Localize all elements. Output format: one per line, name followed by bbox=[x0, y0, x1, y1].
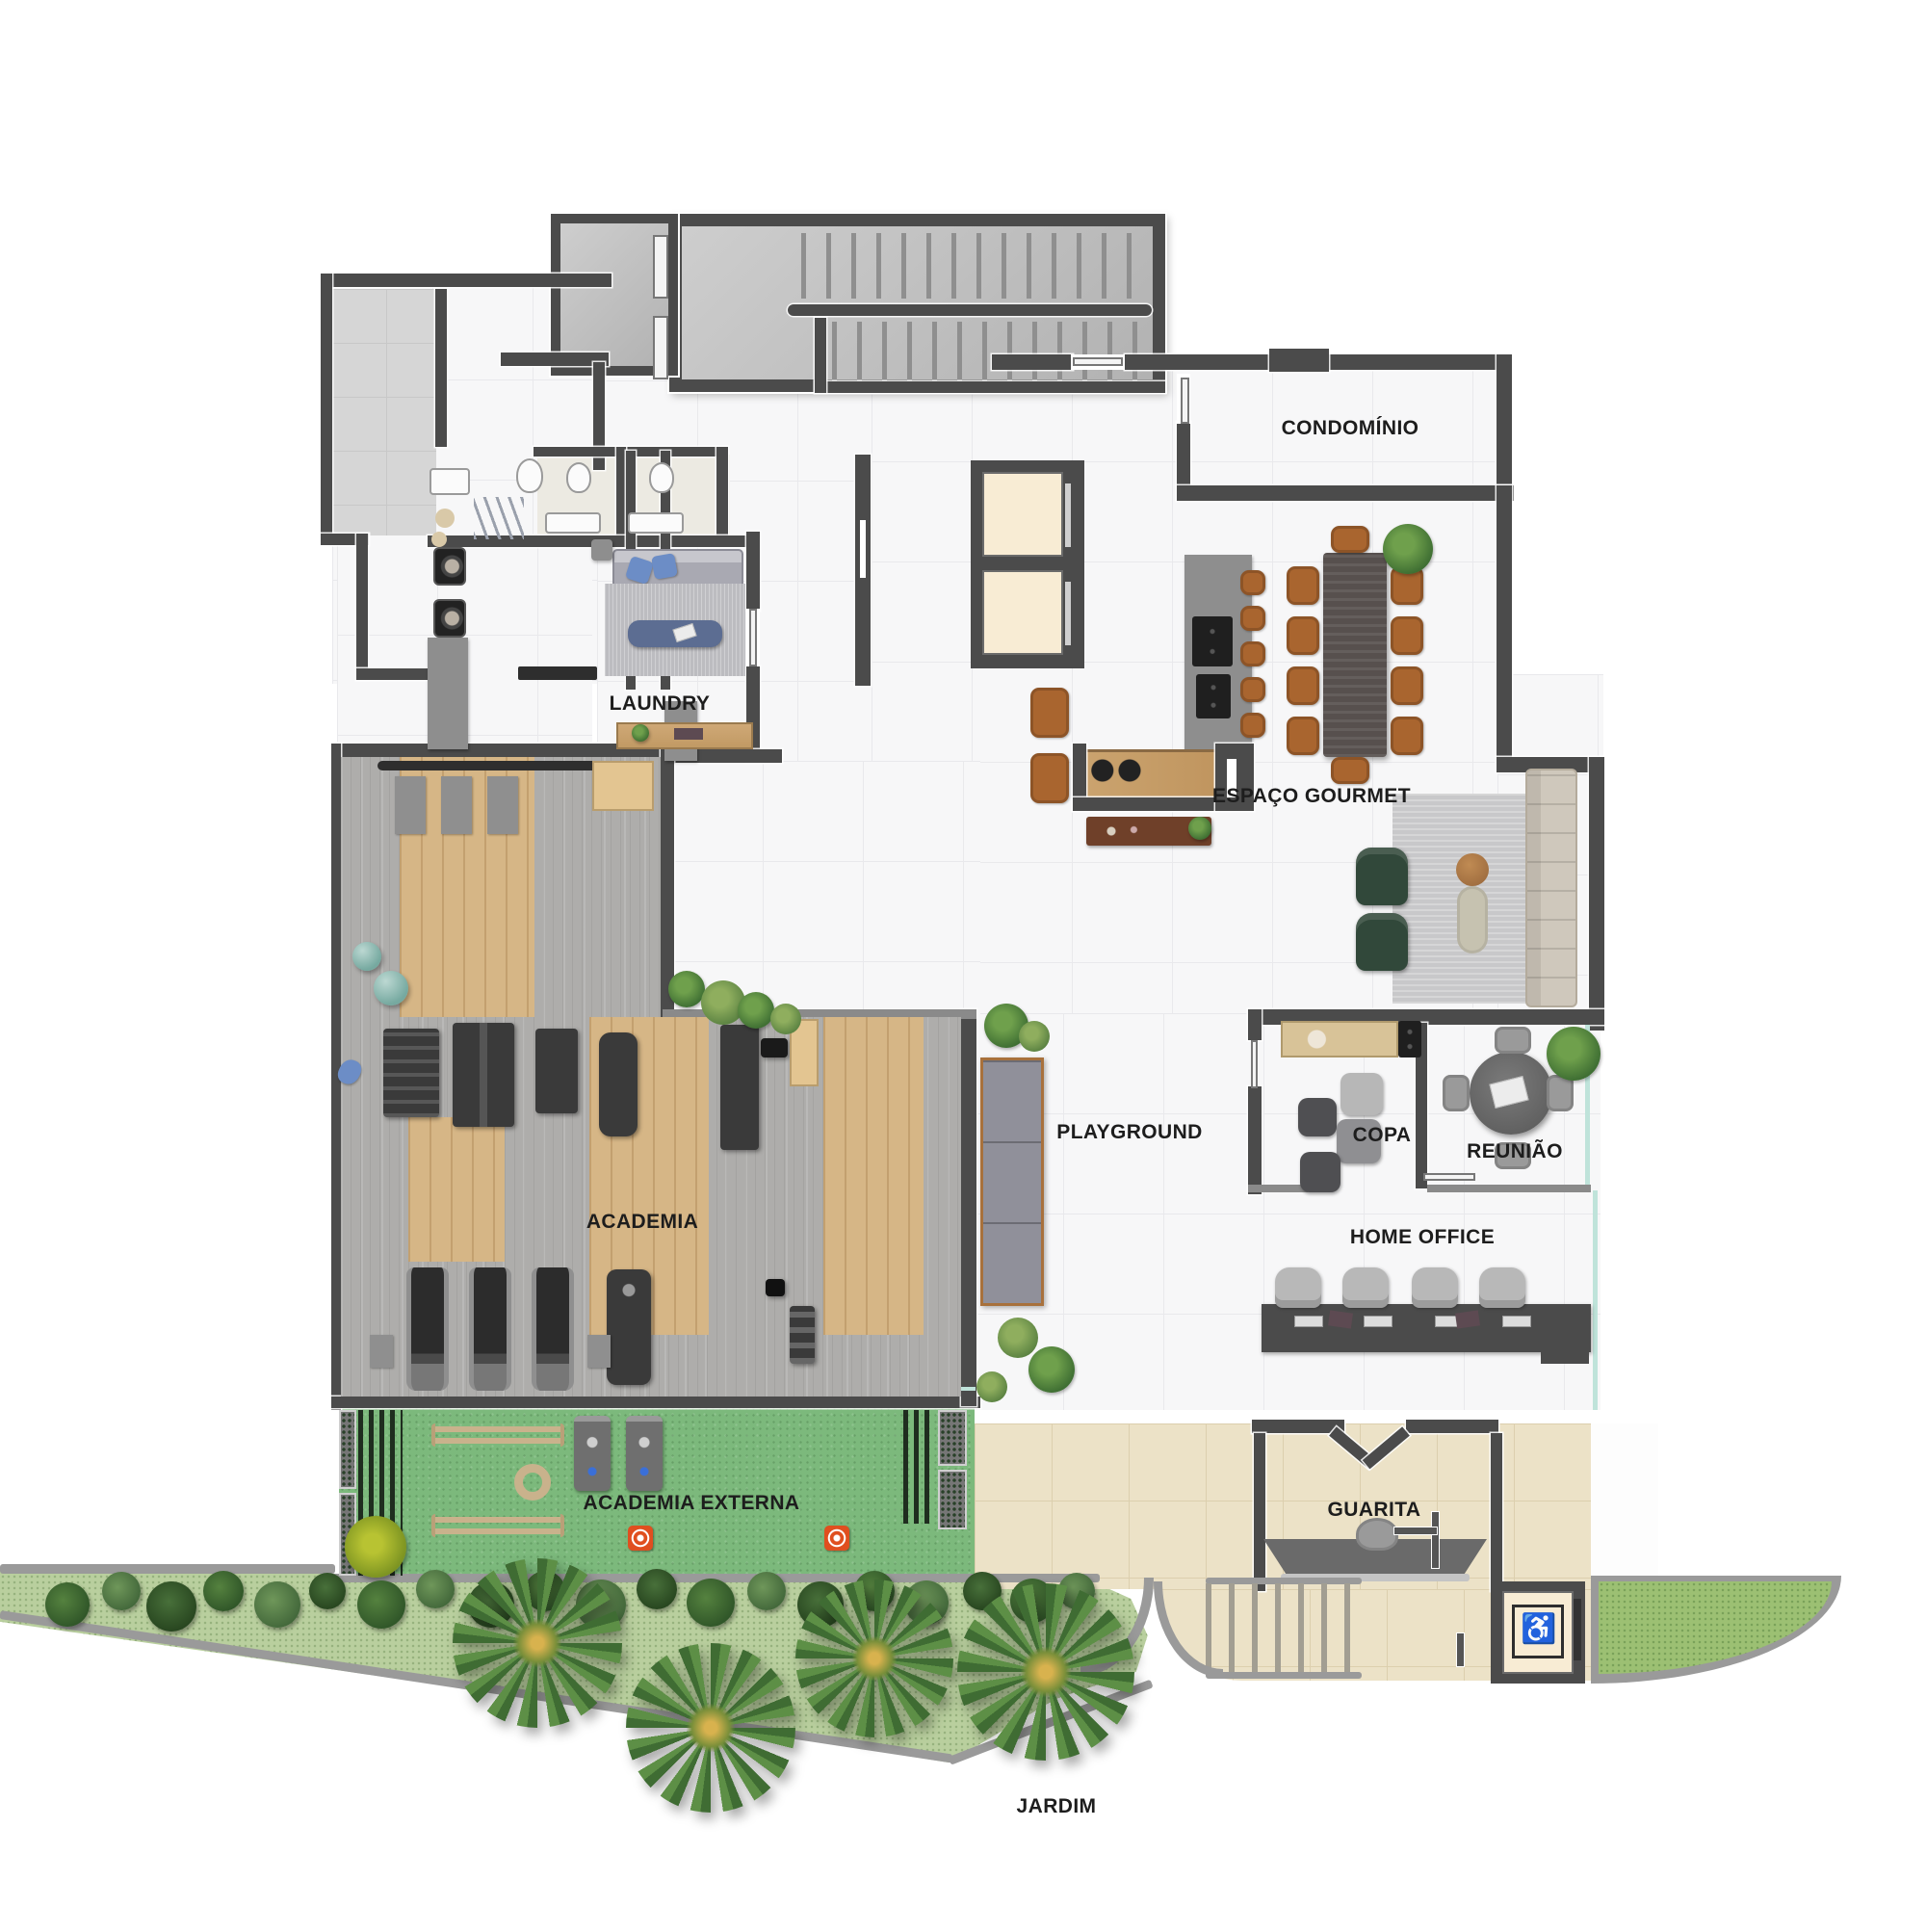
stair-treads-upper bbox=[801, 233, 1150, 299]
wall bbox=[1254, 1433, 1265, 1591]
wall bbox=[321, 274, 332, 545]
gym-machine bbox=[383, 1029, 439, 1117]
palm-tree bbox=[453, 1558, 622, 1728]
office-chair bbox=[1412, 1267, 1458, 1308]
gym-pad bbox=[587, 1335, 611, 1368]
weights bbox=[766, 1279, 785, 1296]
barstool bbox=[1240, 606, 1265, 631]
barstool bbox=[1240, 677, 1265, 702]
room-label-home-office: HOME OFFICE bbox=[1350, 1226, 1495, 1249]
yoga-mat bbox=[487, 776, 518, 834]
palm-tree bbox=[957, 1583, 1134, 1761]
chair bbox=[1391, 616, 1423, 655]
wall bbox=[321, 274, 612, 287]
copa-counter bbox=[1281, 1021, 1398, 1057]
bush bbox=[203, 1571, 244, 1611]
wall bbox=[1248, 1009, 1262, 1040]
armchair bbox=[1356, 913, 1408, 971]
wall bbox=[356, 534, 368, 680]
room-label-academia: ACADEMIA bbox=[586, 1211, 698, 1234]
door-leaf bbox=[1181, 378, 1189, 424]
bush bbox=[687, 1579, 735, 1627]
plant bbox=[738, 992, 774, 1029]
bench-long bbox=[980, 1057, 1044, 1306]
washing-machine bbox=[433, 547, 466, 586]
bush bbox=[747, 1572, 786, 1610]
gym-wood-stripe bbox=[823, 1017, 924, 1335]
sink bbox=[1196, 674, 1231, 718]
wall bbox=[961, 1009, 976, 1406]
coffee-table bbox=[1456, 853, 1489, 886]
door-leaf bbox=[653, 316, 668, 379]
toilet bbox=[566, 462, 591, 493]
side-table bbox=[591, 539, 612, 561]
floor-tile bbox=[663, 761, 980, 1021]
curb bbox=[0, 1564, 335, 1574]
ballet-barre bbox=[377, 761, 624, 770]
monitor bbox=[1502, 1316, 1531, 1327]
plant bbox=[1028, 1346, 1075, 1393]
wall-thin bbox=[1427, 1185, 1591, 1192]
bush bbox=[309, 1573, 346, 1609]
plant bbox=[632, 724, 649, 742]
counter-burners bbox=[1086, 757, 1144, 784]
wall bbox=[1497, 354, 1512, 501]
barstool bbox=[1240, 570, 1265, 595]
floor-gray bbox=[332, 289, 436, 535]
planter-box bbox=[339, 1410, 356, 1489]
room-label-copa: COPA bbox=[1353, 1124, 1412, 1147]
glass bbox=[1593, 1190, 1598, 1410]
chair bbox=[1287, 717, 1319, 755]
chair bbox=[1391, 717, 1423, 755]
planter-box bbox=[938, 1410, 967, 1466]
gate-bar bbox=[1394, 1527, 1437, 1534]
cabinet bbox=[428, 638, 468, 749]
plant bbox=[998, 1318, 1038, 1358]
elevator-car bbox=[982, 472, 1063, 557]
wall bbox=[1589, 757, 1604, 1031]
washing-machine bbox=[433, 599, 466, 638]
gym-machine bbox=[720, 1025, 759, 1150]
chair bbox=[1030, 688, 1069, 738]
bush bbox=[146, 1581, 196, 1632]
barstool bbox=[1240, 713, 1265, 738]
floor-plan: ♿CONDOMÍNIO LAUNDRY ESPAÇO GOURMET ACADE… bbox=[0, 0, 1926, 1932]
exercise-ball bbox=[352, 942, 381, 971]
elevator-door bbox=[1065, 582, 1071, 645]
door-leaf bbox=[1423, 1173, 1475, 1181]
wall bbox=[616, 447, 626, 543]
door-leaf bbox=[749, 609, 757, 666]
door-leaf bbox=[1073, 357, 1123, 366]
room-label-jardim: JARDIM bbox=[1017, 1795, 1097, 1818]
outdoor-station bbox=[574, 1416, 611, 1491]
palm-tree bbox=[795, 1580, 953, 1737]
vanity bbox=[545, 512, 601, 534]
stairs-down bbox=[1206, 1583, 1362, 1676]
wall bbox=[331, 1397, 980, 1408]
drying-rack bbox=[474, 497, 524, 539]
chair bbox=[1391, 666, 1423, 705]
chair bbox=[1495, 1027, 1531, 1054]
room-label-academia-externa: ACADEMIA EXTERNA bbox=[584, 1492, 800, 1515]
treadmill bbox=[469, 1267, 511, 1391]
ramp-curve bbox=[1154, 1581, 1223, 1678]
treadmill bbox=[532, 1267, 574, 1391]
office-chair bbox=[1275, 1267, 1321, 1308]
yoga-mat bbox=[395, 776, 426, 834]
lawn-wedge bbox=[1599, 1581, 1832, 1674]
tv-console bbox=[518, 666, 597, 680]
monitor bbox=[1294, 1316, 1323, 1327]
gate-post bbox=[1457, 1633, 1464, 1666]
bush bbox=[254, 1581, 300, 1628]
wheelchair-icon: ♿ bbox=[1514, 1610, 1564, 1649]
wall bbox=[746, 532, 760, 611]
ottoman bbox=[1298, 1098, 1337, 1136]
gym-machine bbox=[453, 1023, 514, 1127]
plant bbox=[668, 971, 705, 1007]
wall bbox=[1248, 1086, 1262, 1194]
chair bbox=[1030, 753, 1069, 803]
room-label-playground: PLAYGROUND bbox=[1056, 1121, 1202, 1144]
plant bbox=[1188, 817, 1211, 840]
wall bbox=[1252, 1420, 1344, 1433]
stair-treads-lower bbox=[832, 322, 1150, 381]
laptop bbox=[1328, 1310, 1353, 1328]
palm-tree bbox=[626, 1643, 795, 1813]
barstool bbox=[1240, 641, 1265, 666]
chair bbox=[1443, 1075, 1470, 1111]
office-chair bbox=[1479, 1267, 1525, 1308]
vanity bbox=[628, 512, 684, 534]
parallel-bars bbox=[431, 1514, 564, 1537]
wall bbox=[1406, 1420, 1498, 1433]
planter-box bbox=[938, 1470, 967, 1529]
stairs-edge bbox=[1206, 1672, 1362, 1679]
desk-step bbox=[1541, 1346, 1589, 1364]
sidewalk bbox=[1591, 1423, 1658, 1589]
wall-thin bbox=[1248, 1185, 1308, 1192]
toilet bbox=[649, 462, 674, 493]
chair bbox=[1331, 526, 1369, 553]
plant bbox=[976, 1371, 1007, 1402]
dumbbells bbox=[761, 1038, 788, 1057]
parallel-bars bbox=[431, 1423, 564, 1447]
room-label-espaco-gourmet: ESPAÇO GOURMET bbox=[1212, 785, 1411, 808]
room-label-condominio: CONDOMÍNIO bbox=[1282, 417, 1419, 440]
bush bbox=[357, 1580, 405, 1629]
wall bbox=[1073, 797, 1229, 811]
cooktop bbox=[1192, 616, 1233, 666]
bush bbox=[416, 1570, 455, 1608]
plant bbox=[1383, 524, 1433, 574]
ottoman bbox=[1300, 1152, 1340, 1192]
office-chair bbox=[1342, 1267, 1389, 1308]
towel bbox=[431, 532, 447, 547]
toilet bbox=[516, 458, 543, 493]
tan-block bbox=[592, 761, 654, 811]
wall bbox=[1491, 1433, 1502, 1591]
plant bbox=[770, 1004, 801, 1034]
wall bbox=[1497, 485, 1512, 770]
exercise-bike bbox=[599, 1032, 638, 1136]
wall bbox=[992, 354, 1073, 370]
plant bbox=[1019, 1021, 1050, 1052]
gym-machine bbox=[535, 1029, 578, 1113]
room-label-reuniao: REUNIÃO bbox=[1467, 1140, 1563, 1163]
elevator-door bbox=[1065, 483, 1071, 547]
exercise-ball bbox=[374, 971, 408, 1005]
elliptical bbox=[607, 1269, 651, 1385]
planter-slats bbox=[903, 1410, 934, 1524]
door-leaf bbox=[1251, 1040, 1258, 1088]
wall bbox=[716, 447, 728, 545]
stair-rail bbox=[788, 304, 1152, 316]
rope-ring bbox=[514, 1464, 551, 1501]
ottoman bbox=[1340, 1073, 1383, 1115]
partition-slot bbox=[860, 520, 866, 578]
laptop bbox=[674, 728, 703, 740]
bush-yellow bbox=[345, 1516, 406, 1578]
target bbox=[628, 1526, 653, 1551]
target bbox=[824, 1526, 849, 1551]
bush bbox=[102, 1572, 141, 1610]
gate-post bbox=[1432, 1512, 1439, 1568]
chair bbox=[1287, 566, 1319, 605]
laptop bbox=[1455, 1310, 1480, 1328]
gym-pad bbox=[370, 1335, 393, 1368]
yoga-mat bbox=[441, 776, 472, 834]
wall bbox=[815, 318, 826, 393]
sofa-lounge bbox=[1525, 769, 1577, 1007]
plant bbox=[1547, 1027, 1601, 1081]
room-label-guarita: GUARITA bbox=[1328, 1499, 1421, 1522]
guard-chair bbox=[1356, 1518, 1398, 1551]
wall bbox=[356, 668, 429, 680]
elevator-door bbox=[1574, 1599, 1581, 1660]
sink bbox=[429, 468, 470, 495]
bush bbox=[637, 1569, 677, 1609]
room-label-laundry: LAUNDRY bbox=[610, 692, 711, 716]
wall bbox=[815, 381, 1165, 393]
dining-table bbox=[1323, 553, 1387, 757]
pillow bbox=[651, 553, 678, 580]
desk bbox=[1262, 1304, 1591, 1352]
gym-wood-stripe bbox=[408, 1117, 505, 1262]
chair bbox=[1287, 616, 1319, 655]
door-leaf bbox=[653, 235, 668, 299]
outdoor-station bbox=[626, 1416, 663, 1491]
towel bbox=[435, 509, 455, 528]
armchair bbox=[1356, 848, 1408, 905]
coffee-table bbox=[1457, 886, 1488, 953]
monitor bbox=[1364, 1316, 1392, 1327]
wall bbox=[435, 289, 447, 447]
treadmill bbox=[406, 1267, 449, 1391]
wall bbox=[1177, 485, 1514, 501]
copa-appliance bbox=[1398, 1021, 1421, 1057]
chair bbox=[1331, 757, 1369, 784]
bush bbox=[45, 1582, 90, 1627]
dumbbell-rack bbox=[790, 1306, 815, 1364]
chair bbox=[1287, 666, 1319, 705]
wall-pillar bbox=[1269, 349, 1329, 372]
elevator-car bbox=[982, 570, 1063, 655]
